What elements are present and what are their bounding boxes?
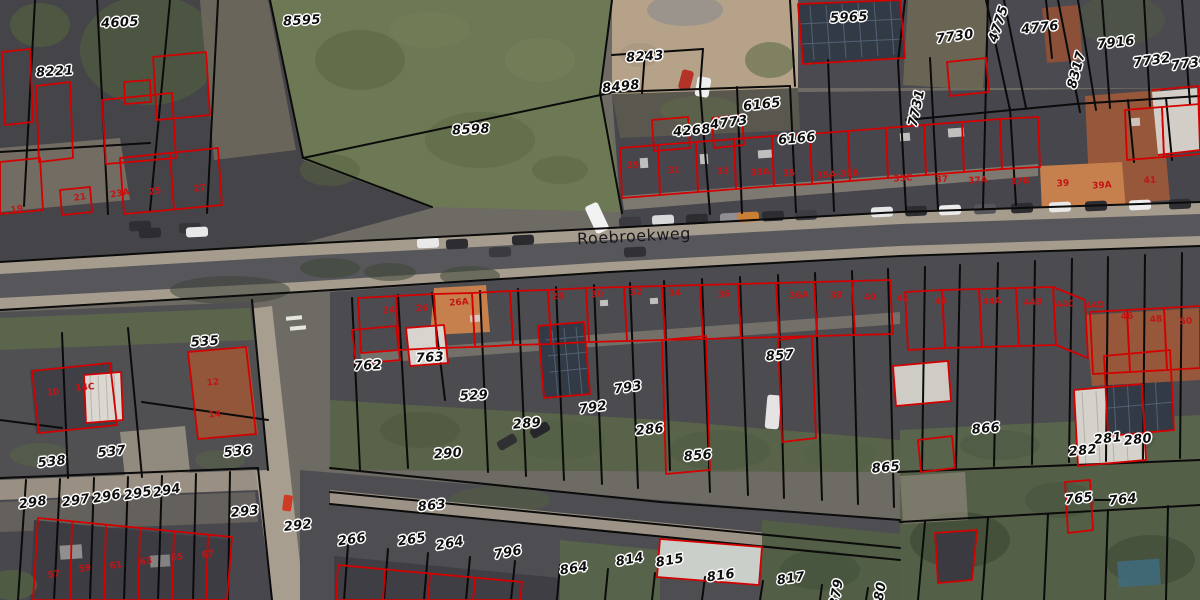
parcel-label: 816 [706,567,736,586]
street-name-label: Roebroekweg [577,224,692,249]
parcel-label: 856 [683,447,713,464]
house-number-label: 23A [110,187,131,200]
parcel-label: 289 [512,415,542,432]
parcel-label: 292 [283,517,313,535]
house-number-label: 65 [170,552,184,564]
house-number-label: 21 [73,192,87,204]
parcel-label: 7731 [906,88,929,128]
parcel-label: 538 [37,453,67,471]
house-number-label: 26A [449,297,469,308]
parcel-label: 295 [123,484,154,504]
parcel-label: 763 [415,350,444,366]
house-number-label: 39A [1092,180,1112,191]
house-number-label: 48 [1149,315,1162,326]
parcel-label: 814 [615,550,646,570]
parcel-label: 796 [493,543,524,563]
parcel-label: 8595 [283,13,322,30]
house-number-label: 40 [863,293,876,304]
parcel-label: 294 [152,481,183,501]
parcel-label: 265 [397,531,427,550]
parcel-label: 866 [971,420,1001,437]
parcel-label: 4268 [673,122,712,140]
house-number-label: 63 [139,556,153,568]
parcel-label: 762 [353,358,382,374]
parcel-label: 792 [578,399,608,418]
parcel-label: 793 [613,379,643,398]
parcel-label: 529 [459,388,488,404]
house-number-label: 28 [551,292,564,303]
parcel-label: 7732 [1132,51,1172,71]
house-number-label: 59 [78,563,92,575]
labels-layer: Roebroekweg 4605822185958598824384984268… [0,0,1200,600]
house-number-label: 12 [206,377,219,388]
parcel-label: 8221 [36,63,75,81]
house-number-label: 42 [896,294,909,305]
house-number-label: 19 [10,204,24,216]
house-number-label: 44A [982,296,1002,307]
parcel-label: 266 [337,531,367,550]
parcel-label: 282 [1068,442,1098,460]
parcel-label: 297 [61,492,91,511]
house-number-label: 10 [46,387,59,398]
parcel-label: 298 [18,494,48,513]
house-number-label: 39 [1056,179,1069,190]
house-number-label: 35 [782,169,795,180]
map-viewport[interactable]: Roebroekweg 4605822185958598824384984268… [0,0,1200,600]
parcel-label: 857 [765,348,794,365]
house-number-label: 46 [1120,312,1133,323]
parcel-label: 815 [655,551,686,571]
house-number-label: 37 [935,175,948,186]
parcel-label: 879 [827,578,847,600]
parcel-label: 863 [417,497,447,515]
house-number-label: 50 [1179,317,1192,328]
parcel-label: 286 [635,421,665,439]
parcel-label: 8243 [626,48,665,66]
house-number-label: 27 [193,183,207,195]
parcel-label: 4776 [1020,19,1059,38]
house-number-label: 32 [629,288,642,299]
house-number-label: 26 [415,304,428,315]
parcel-label: 5965 [830,10,869,27]
parcel-label: 536 [223,443,253,460]
parcel-label: 8317 [1065,50,1089,90]
parcel-label: 7730 [935,27,975,47]
parcel-label: 7916 [1096,34,1135,53]
parcel-label: 4605 [101,15,140,32]
parcel-label: 4775 [986,4,1012,45]
parcel-label: 293 [230,503,260,521]
parcel-label: 865 [871,459,901,476]
parcel-label: 537 [97,443,127,461]
house-number-label: 37A [968,175,988,186]
parcel-label: 290 [433,446,462,463]
house-number-label: 44C [1055,299,1075,310]
parcel-label: 280 [1123,431,1153,449]
house-number-label: 36 [717,290,730,301]
house-number-label: 35A-35B [816,169,859,182]
parcel-label: 6166 [778,130,817,148]
house-number-label: 38 [829,291,842,302]
house-number-label: 44 [934,297,947,308]
parcel-label: 4773 [709,113,749,133]
parcel-label: 6165 [742,96,781,115]
house-number-label: 29 [626,161,639,172]
parcel-label: 880 [870,581,890,600]
house-number-label: 14C [75,382,95,394]
parcel-label: 535 [190,334,219,351]
parcel-label: 764 [1108,491,1138,509]
parcel-label: 8598 [452,122,491,139]
parcel-label: 864 [559,560,589,579]
parcel-label: 817 [776,570,806,589]
house-number-label: 33A [750,167,770,178]
house-number-label: 30 [590,290,603,301]
house-number-label: 25 [148,186,162,198]
house-number-label: 41 [1143,176,1156,187]
house-number-label: 36A [789,290,809,301]
house-number-label: 14 [208,409,221,420]
parcel-label: 264 [435,534,466,554]
house-number-label: 67 [201,549,215,561]
house-number-label: 34 [668,289,681,300]
house-number-label: 24 [382,306,395,317]
parcel-label: 765 [1064,490,1094,508]
parcel-label: 8498 [601,78,640,97]
house-number-label: 44D [1085,300,1106,311]
parcel-label: 281 [1093,430,1123,448]
parcel-label: 7733 [1170,54,1200,74]
house-number-label: 37B [1010,176,1030,187]
house-number-label: 61 [109,560,123,572]
house-number-label: 44B [1023,297,1043,308]
house-number-label: 33 [716,167,729,178]
house-number-label: 35C [893,173,913,184]
parcel-label: 296 [92,487,123,507]
house-number-label: 31 [667,166,680,177]
house-number-label: 57 [47,569,61,581]
